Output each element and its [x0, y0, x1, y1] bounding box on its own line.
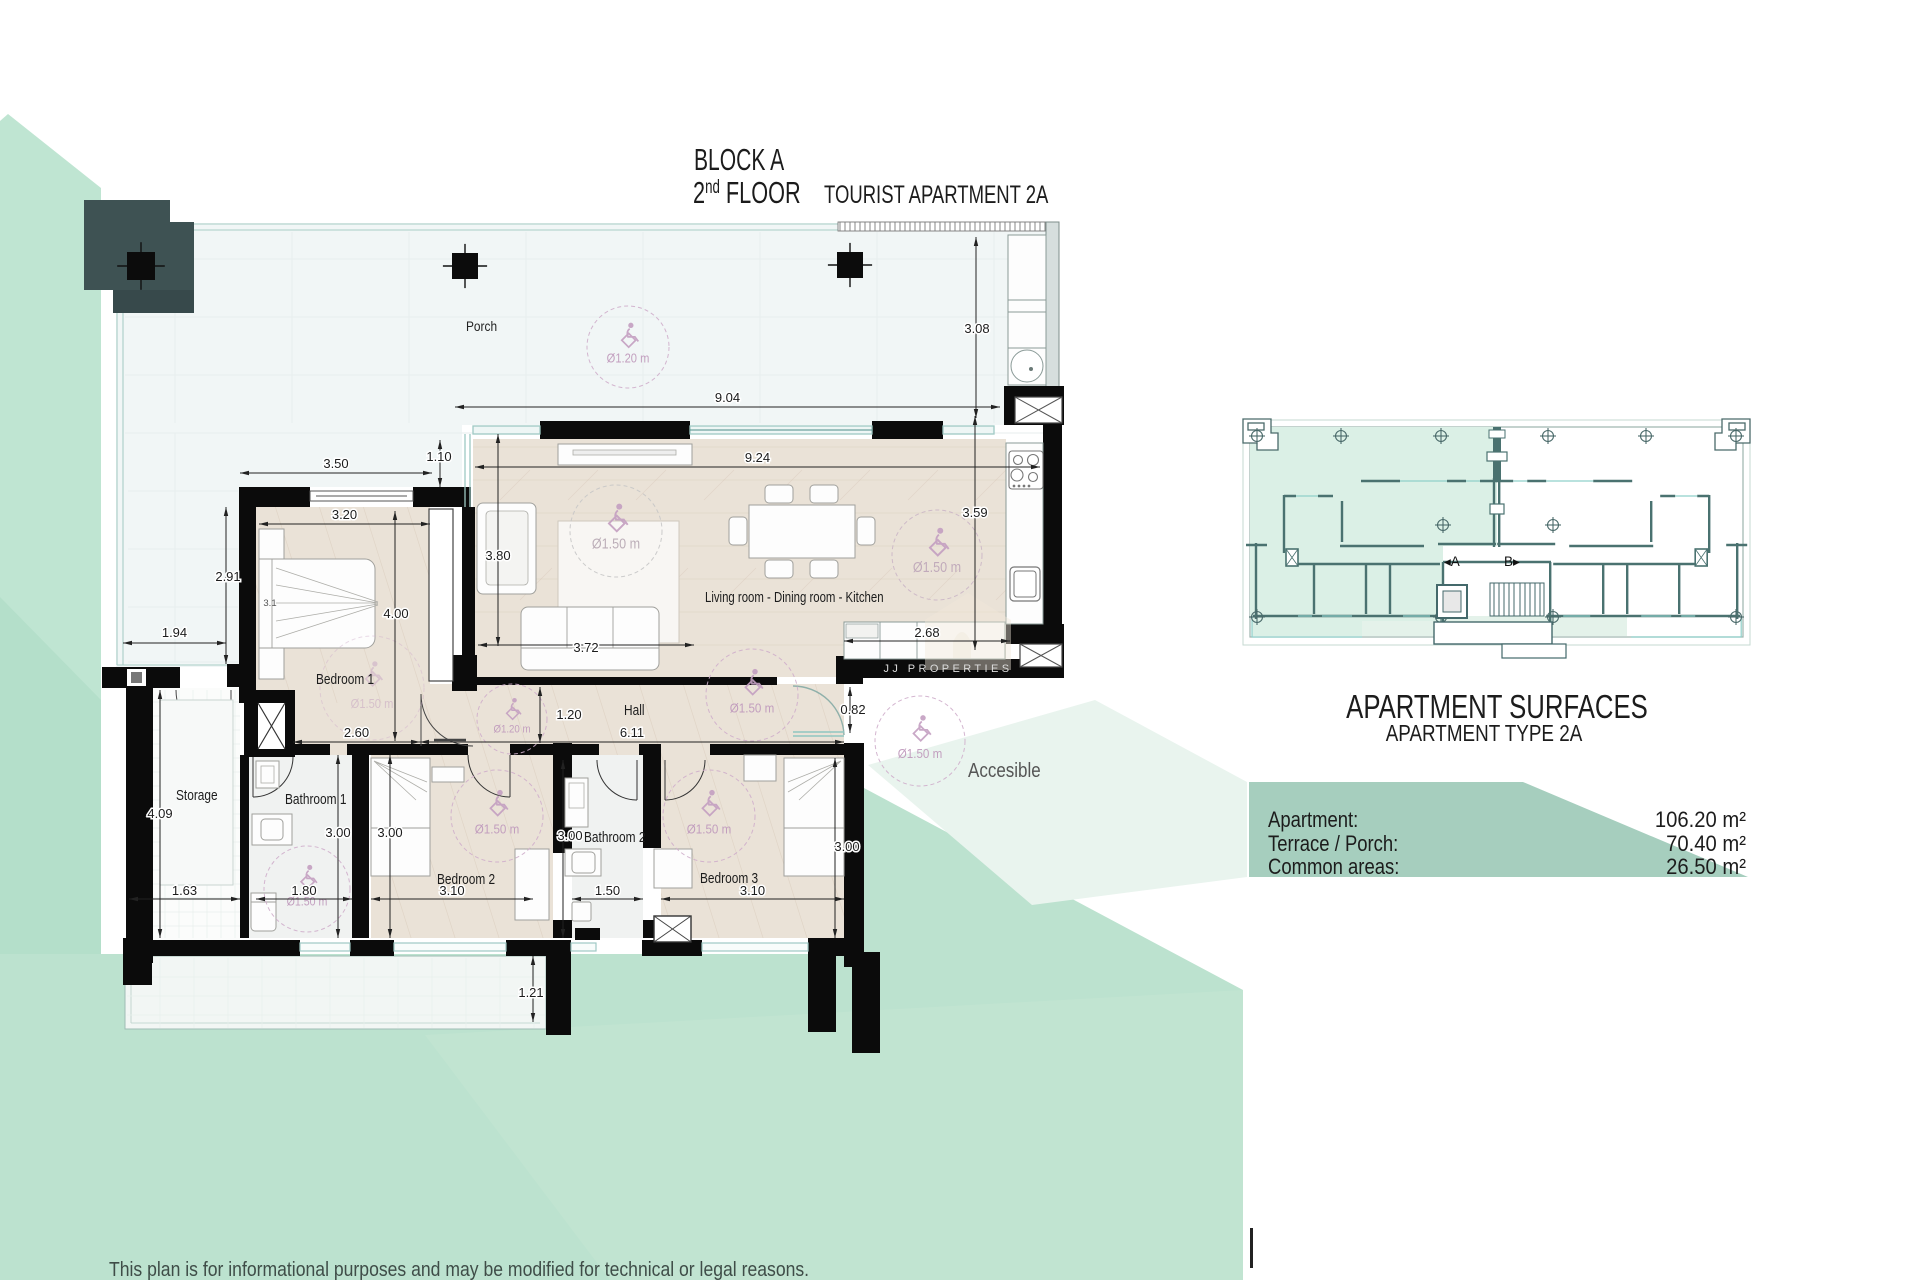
svg-text:Porch: Porch — [466, 318, 497, 334]
svg-text:1.20: 1.20 — [556, 707, 581, 722]
svg-text:3.80: 3.80 — [485, 548, 510, 563]
svg-text:Ø1.50 m: Ø1.50 m — [730, 701, 775, 716]
svg-text:Bathroom 2: Bathroom 2 — [584, 829, 645, 845]
svg-text:Storage: Storage — [176, 787, 218, 803]
svg-text:JJ PROPERTIES: JJ PROPERTIES — [884, 663, 1013, 675]
svg-text:Ø1.50 m: Ø1.50 m — [475, 822, 520, 837]
svg-text:3.00: 3.00 — [325, 825, 350, 840]
svg-text:3.10: 3.10 — [740, 883, 765, 898]
svg-text:1.63: 1.63 — [172, 883, 197, 898]
svg-text:3.20: 3.20 — [332, 507, 357, 522]
svg-text:9.04: 9.04 — [715, 390, 740, 405]
svg-text:Bedroom 1: Bedroom 1 — [316, 671, 374, 687]
svg-text:BLOCK A: BLOCK A — [694, 142, 784, 177]
svg-text:2.68: 2.68 — [914, 625, 939, 640]
svg-text:Ø1.50 m: Ø1.50 m — [592, 536, 640, 552]
svg-text:1.80: 1.80 — [291, 883, 316, 898]
svg-text:This plan is for informational: This plan is for informational purposes … — [109, 1258, 809, 1280]
svg-text:Ø1.50 m: Ø1.50 m — [687, 822, 732, 837]
svg-text:1.10: 1.10 — [426, 449, 451, 464]
svg-text:Ø1.20 m: Ø1.20 m — [607, 351, 650, 366]
svg-text:Apartment:: Apartment: — [1268, 809, 1358, 833]
svg-text:Ø1.20 m: Ø1.20 m — [493, 724, 530, 736]
svg-text:70.40 m²: 70.40 m² — [1666, 832, 1746, 856]
svg-text:Terrace / Porch:: Terrace / Porch: — [1268, 833, 1398, 857]
svg-text:3.59: 3.59 — [962, 505, 987, 520]
svg-text:Common areas:: Common areas: — [1268, 856, 1399, 880]
svg-text:3.00: 3.00 — [834, 839, 859, 854]
svg-text:3.08: 3.08 — [964, 321, 989, 336]
svg-text:106.20 m²: 106.20 m² — [1655, 808, 1746, 832]
svg-text:4.00: 4.00 — [383, 606, 408, 621]
svg-text:Hall: Hall — [624, 702, 645, 718]
svg-text:Ø1.50 m: Ø1.50 m — [351, 696, 394, 711]
svg-text:1.50: 1.50 — [595, 883, 620, 898]
svg-text:1.21: 1.21 — [518, 985, 543, 1000]
svg-text:3.00: 3.00 — [557, 828, 582, 843]
svg-text:1.94: 1.94 — [162, 625, 187, 640]
svg-text:9.24: 9.24 — [745, 450, 770, 465]
svg-text:TOURIST APARTMENT 2A: TOURIST APARTMENT 2A — [824, 180, 1049, 208]
svg-text:2.60: 2.60 — [344, 725, 369, 740]
svg-text:Ø1.50 m: Ø1.50 m — [898, 746, 943, 761]
svg-text:3.50: 3.50 — [323, 456, 348, 471]
svg-text:B▸: B▸ — [1504, 554, 1520, 569]
svg-text:3.00: 3.00 — [377, 825, 402, 840]
svg-text:APARTMENT SURFACES: APARTMENT SURFACES — [1346, 689, 1648, 726]
svg-text:3.1: 3.1 — [263, 598, 276, 609]
svg-text:0.82: 0.82 — [840, 702, 865, 717]
svg-text:◂A: ◂A — [1444, 554, 1460, 569]
svg-text:4.09: 4.09 — [147, 806, 172, 821]
svg-text:6.11: 6.11 — [620, 725, 644, 740]
svg-text:3.72: 3.72 — [573, 640, 598, 655]
svg-text:Accesible: Accesible — [968, 759, 1041, 782]
svg-text:Living room - Dining room - Ki: Living room - Dining room - Kitchen — [705, 588, 884, 605]
svg-text:Bathroom 1: Bathroom 1 — [285, 791, 346, 807]
svg-text:26.50 m²: 26.50 m² — [1666, 855, 1746, 879]
svg-text:Ø1.50 m: Ø1.50 m — [913, 559, 961, 575]
svg-text:APARTMENT TYPE 2A: APARTMENT TYPE 2A — [1386, 721, 1583, 746]
svg-text:3.10: 3.10 — [439, 883, 464, 898]
svg-text:2.91: 2.91 — [215, 569, 240, 584]
